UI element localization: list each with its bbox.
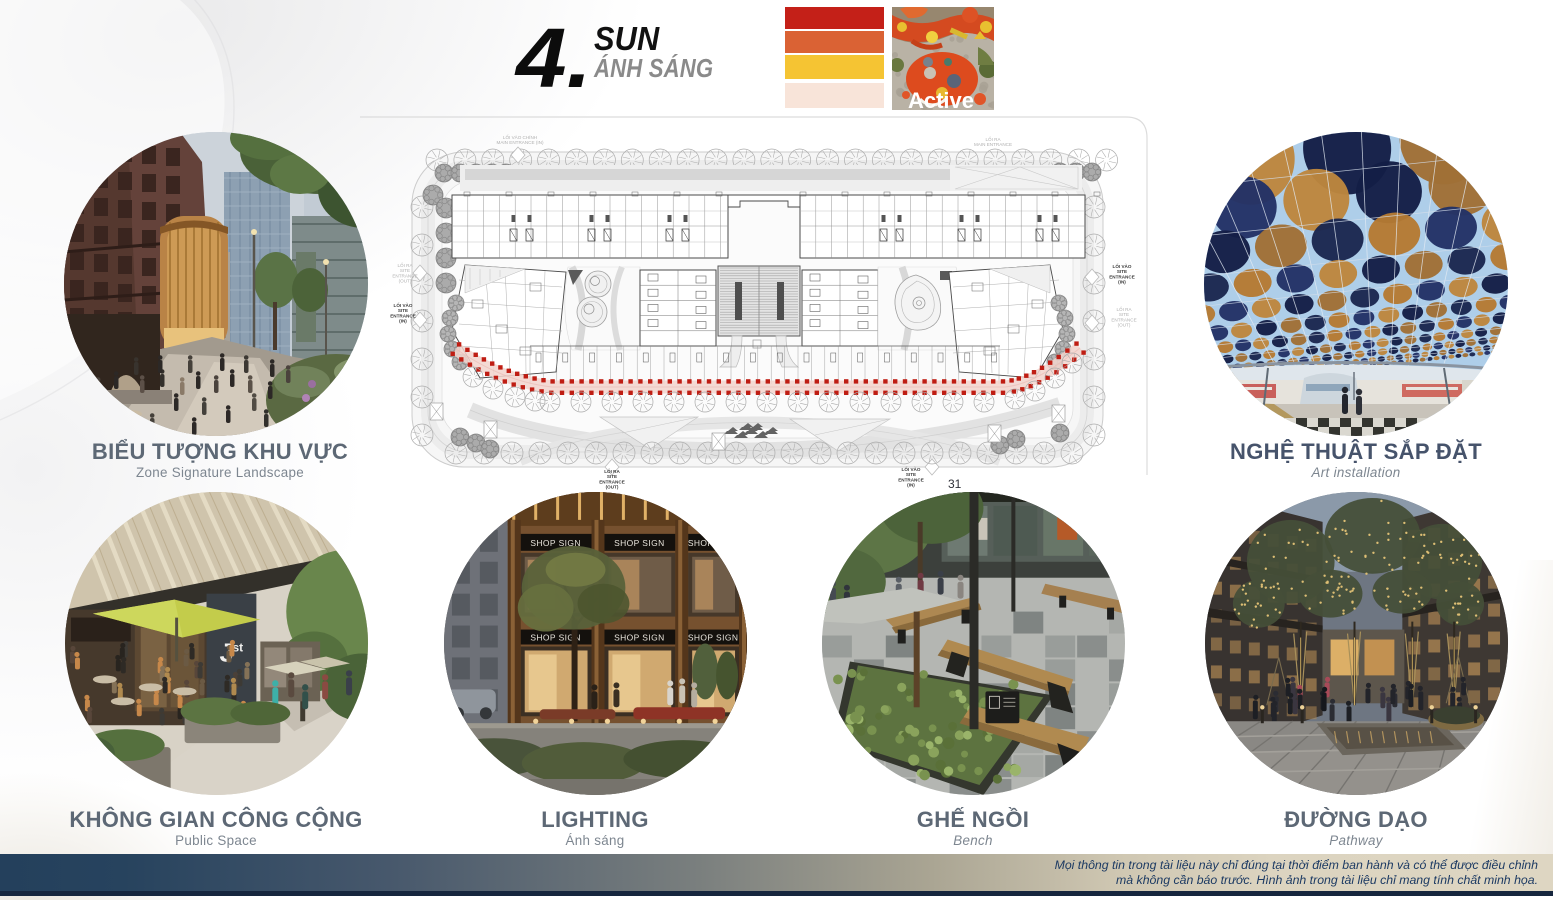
svg-text:LỐI RASITEENTRANCE(OUT): LỐI RASITEENTRANCE(OUT) [599, 468, 625, 490]
svg-text:SHOP SIGN: SHOP SIGN [688, 633, 739, 643]
svg-text:SHOP SIGN: SHOP SIGN [688, 538, 739, 548]
svg-text:LỐI VÀOSITEENTRANCE(IN): LỐI VÀOSITEENTRANCE(IN) [898, 466, 924, 488]
svg-text:SHOP SIGN: SHOP SIGN [614, 538, 665, 548]
svg-text:SHOP SIGN: SHOP SIGN [614, 633, 665, 643]
svg-text:Active: Active [908, 88, 974, 110]
svg-text:LỐI RASITEENTRANCE(OUT): LỐI RASITEENTRANCE(OUT) [1111, 306, 1136, 328]
svg-text:LỐI VÀOSITEENTRANCE(IN): LỐI VÀOSITEENTRANCE(IN) [1109, 263, 1135, 285]
svg-text:LỐI RAMAIN ENTRANCE: LỐI RAMAIN ENTRANCE [974, 136, 1012, 147]
svg-text:LỐI VÀO CHÍNHMAIN ENTRANCE (IN: LỐI VÀO CHÍNHMAIN ENTRANCE (IN) [497, 134, 544, 145]
